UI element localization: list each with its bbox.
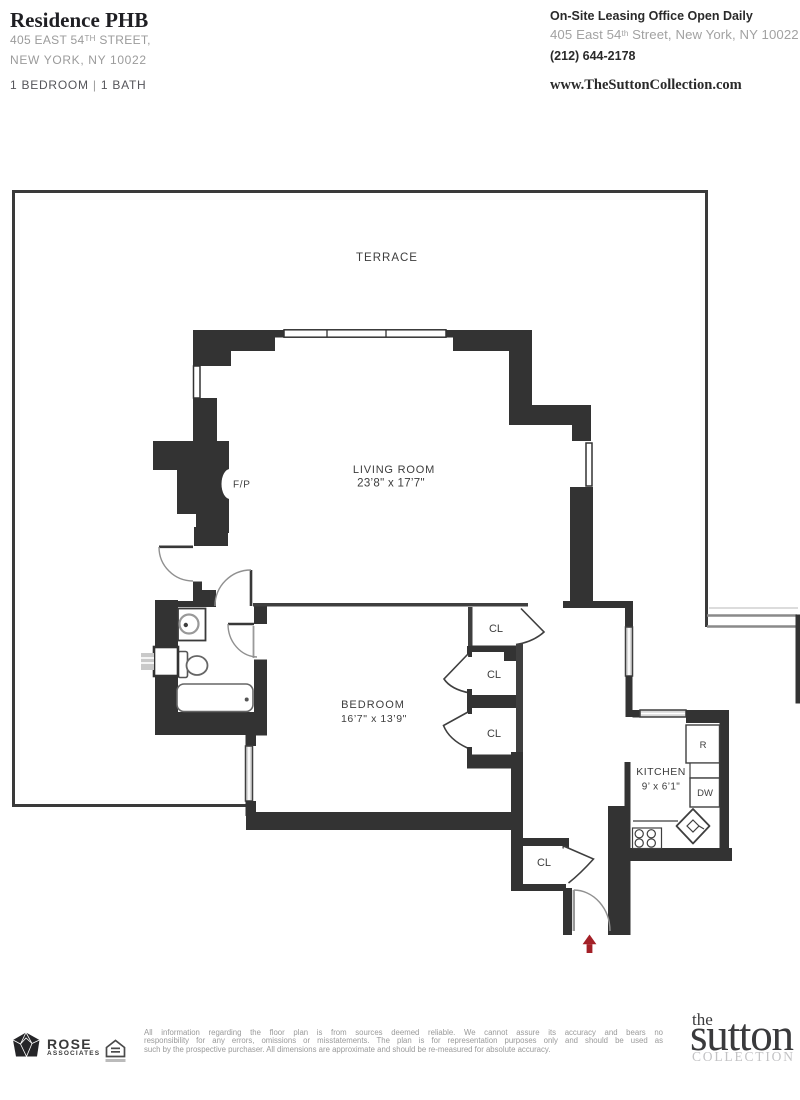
svg-text:KITCHEN: KITCHEN: [636, 766, 686, 778]
svg-text:CL: CL: [489, 623, 503, 635]
svg-text:16’7" x 13’9": 16’7" x 13’9": [341, 713, 407, 725]
svg-text:TERRACE: TERRACE: [356, 252, 418, 264]
svg-text:R: R: [700, 740, 707, 751]
svg-text:CL: CL: [487, 669, 501, 681]
svg-text:9’ x 6’1": 9’ x 6’1": [642, 782, 681, 793]
svg-text:BEDROOM: BEDROOM: [341, 699, 405, 711]
svg-text:DW: DW: [697, 788, 713, 799]
svg-text:F/P: F/P: [233, 480, 251, 491]
svg-text:CL: CL: [537, 857, 551, 869]
svg-text:23’8" x 17’7": 23’8" x 17’7": [357, 478, 425, 490]
svg-text:CL: CL: [487, 728, 501, 740]
svg-text:LIVING ROOM: LIVING ROOM: [353, 464, 435, 476]
